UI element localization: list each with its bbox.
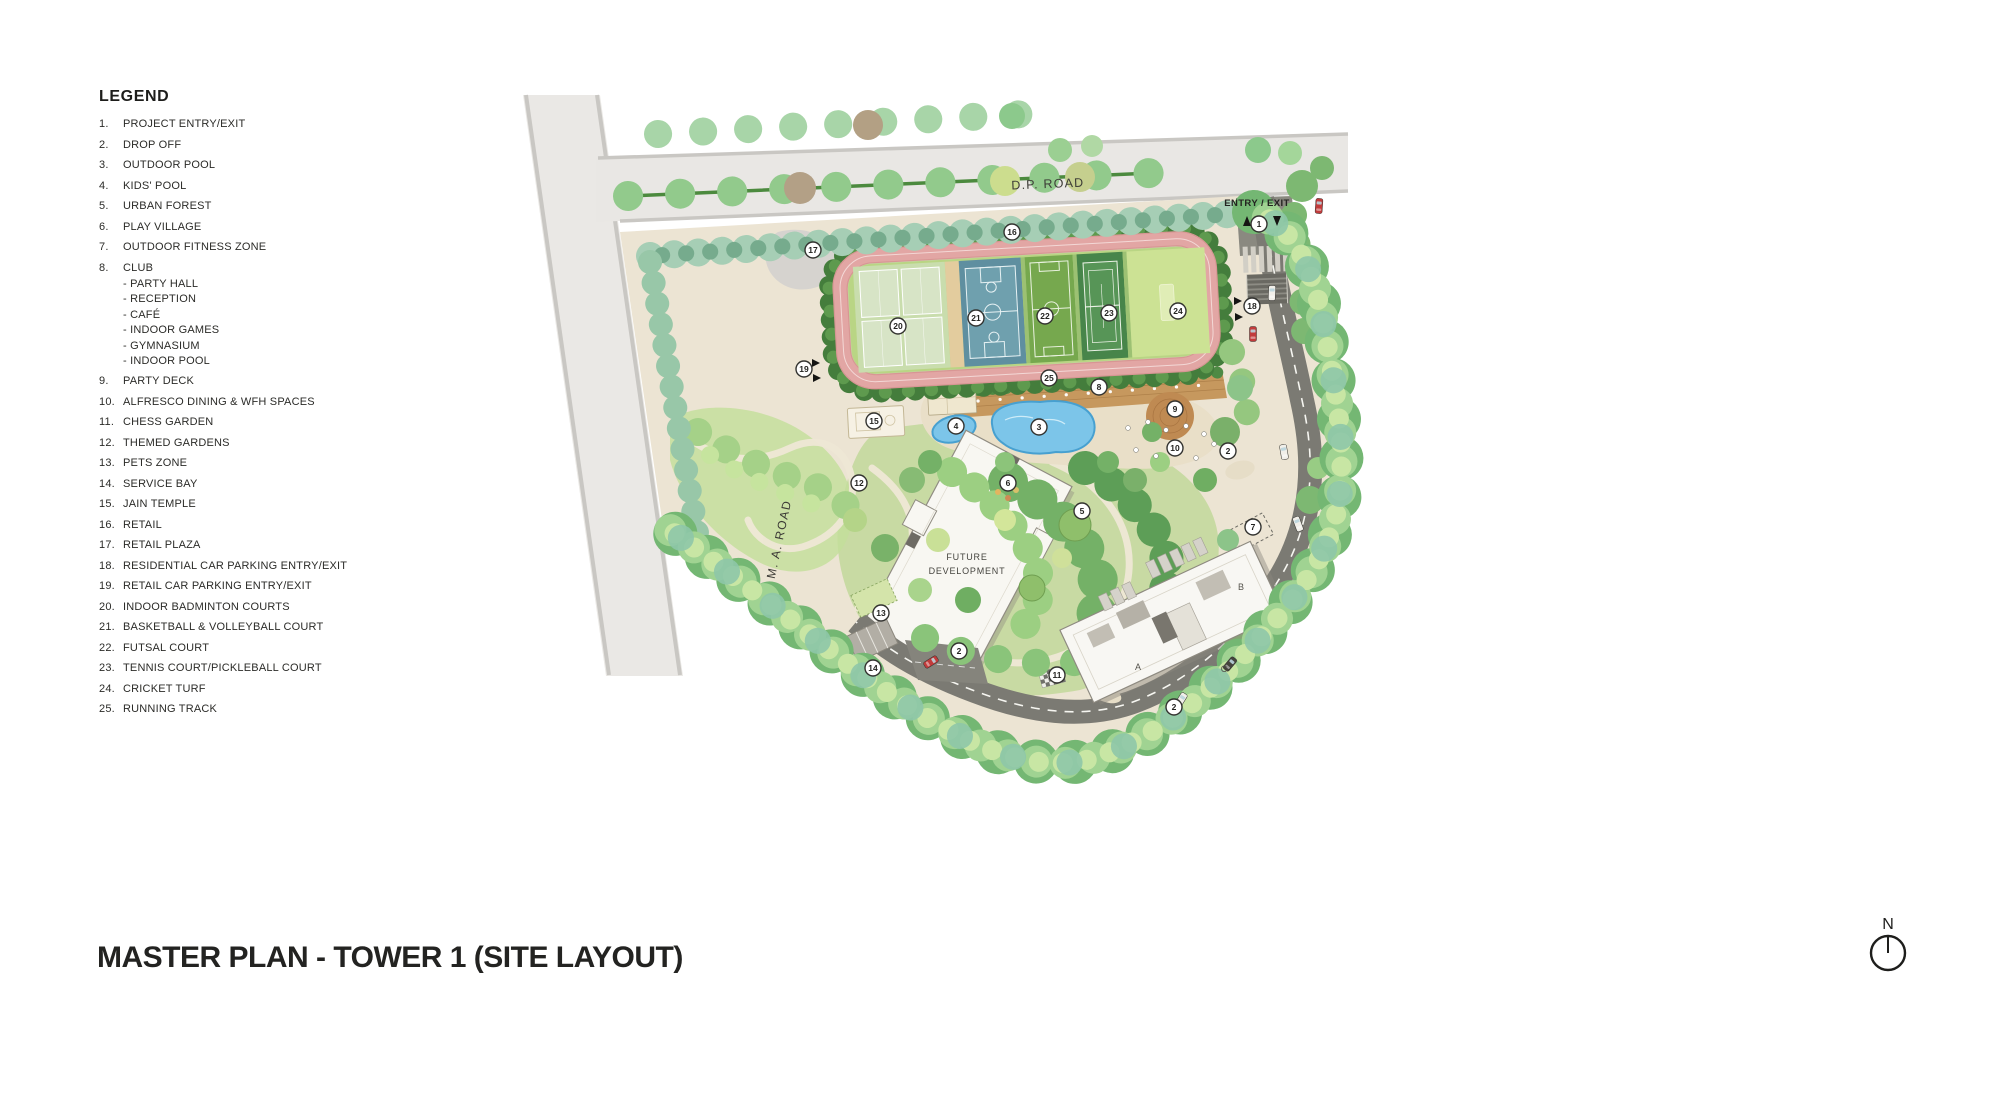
plan-marker-2: 2 [951, 643, 967, 659]
site-plan: 1222345678910111213141516171819202122232… [0, 0, 2000, 1111]
plan-marker-4: 4 [948, 418, 964, 434]
svg-text:25: 25 [1044, 373, 1054, 383]
plan-marker-10: 10 [1167, 440, 1183, 456]
dp-road-label: D.P. ROAD [1011, 176, 1085, 193]
plan-marker-9: 9 [1167, 401, 1183, 417]
plan-marker-21: 21 [968, 310, 984, 326]
svg-text:5: 5 [1080, 506, 1085, 516]
plan-marker-1: 1 [1251, 216, 1267, 232]
plan-marker-22: 22 [1037, 308, 1053, 324]
svg-text:10: 10 [1170, 443, 1180, 453]
future-development-label-2: DEVELOPMENT [929, 566, 1006, 576]
car-white [1268, 285, 1276, 300]
basketball-court [959, 257, 1027, 366]
svg-text:17: 17 [808, 245, 818, 255]
plan-marker-6: 6 [1000, 475, 1016, 491]
master-plan-page: LEGEND 1.PROJECT ENTRY/EXIT2.DROP OFF3.O… [0, 0, 2000, 1111]
future-development-label-1: FUTURE [946, 552, 987, 562]
svg-text:4: 4 [954, 421, 959, 431]
plan-marker-5: 5 [1074, 503, 1090, 519]
svg-text:16: 16 [1007, 227, 1017, 237]
plan-marker-16: 16 [1004, 224, 1020, 240]
svg-text:7: 7 [1251, 522, 1256, 532]
svg-text:24: 24 [1173, 306, 1183, 316]
svg-text:19: 19 [799, 364, 809, 374]
plan-marker-17: 17 [805, 242, 821, 258]
entry-exit-label: ENTRY / EXIT [1224, 198, 1290, 209]
badminton-courts [853, 262, 951, 373]
svg-text:1: 1 [1257, 219, 1262, 229]
svg-text:2: 2 [1226, 446, 1231, 456]
svg-text:22: 22 [1040, 311, 1050, 321]
svg-text:14: 14 [868, 663, 878, 673]
svg-text:11: 11 [1053, 670, 1062, 680]
svg-text:23: 23 [1104, 308, 1114, 318]
tower-wing-b-label: B [1238, 582, 1244, 592]
svg-text:6: 6 [1006, 478, 1011, 488]
plan-marker-24: 24 [1170, 303, 1186, 319]
svg-text:20: 20 [893, 321, 903, 331]
plan-marker-11: 11 [1049, 667, 1065, 683]
svg-text:15: 15 [869, 416, 879, 426]
plan-marker-18: 18 [1244, 298, 1260, 314]
car-red [1315, 198, 1323, 213]
plan-marker-14: 14 [865, 660, 881, 676]
svg-text:2: 2 [957, 646, 962, 656]
svg-text:12: 12 [854, 478, 864, 488]
plan-marker-23: 23 [1101, 305, 1117, 321]
svg-text:3: 3 [1037, 422, 1042, 432]
cricket-turf [1126, 247, 1210, 357]
plan-marker-20: 20 [890, 318, 906, 334]
plan-marker-8: 8 [1091, 379, 1107, 395]
svg-text:2: 2 [1172, 702, 1177, 712]
plan-marker-2: 2 [1166, 699, 1182, 715]
plan-marker-19: 19 [796, 361, 812, 377]
north-label: N [1882, 916, 1894, 933]
north-compass-icon: N [1871, 916, 1905, 970]
futsal-court [1025, 255, 1079, 364]
tower-wing-a-label: A [1135, 662, 1141, 672]
svg-text:21: 21 [971, 313, 981, 323]
tower-wing-c-label: C [1221, 664, 1228, 674]
svg-text:8: 8 [1097, 382, 1102, 392]
car-red [1250, 327, 1257, 342]
tennis-court [1077, 252, 1129, 360]
svg-text:13: 13 [876, 608, 886, 618]
svg-text:18: 18 [1247, 301, 1257, 311]
plan-marker-2: 2 [1220, 443, 1236, 459]
plan-marker-25: 25 [1041, 370, 1057, 386]
plan-marker-15: 15 [866, 413, 882, 429]
svg-text:9: 9 [1173, 404, 1178, 414]
plan-marker-12: 12 [851, 475, 867, 491]
plan-marker-13: 13 [873, 605, 889, 621]
plan-marker-3: 3 [1031, 419, 1047, 435]
plan-marker-7: 7 [1245, 519, 1261, 535]
